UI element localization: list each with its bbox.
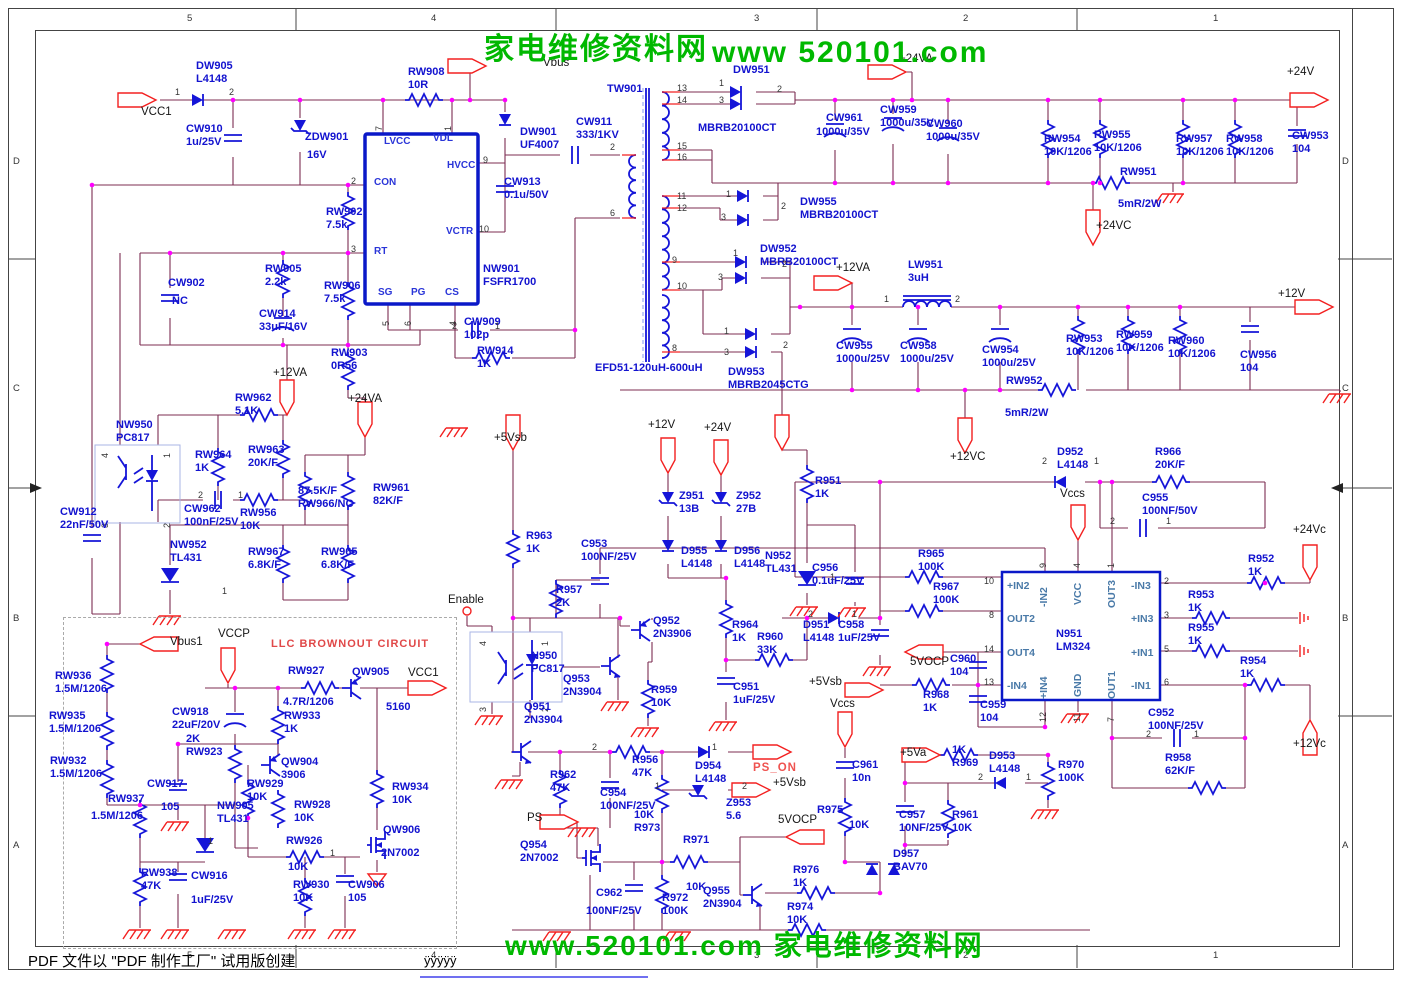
- schematic-label: NC: [172, 295, 188, 308]
- schematic-label: Vbus1: [170, 636, 203, 650]
- schematic-label: 6: [403, 321, 414, 326]
- schematic-label: C960 104: [950, 653, 976, 679]
- footer-text: PDF 文件以 "PDF 制作工厂" 试用版创建: [28, 953, 295, 971]
- schematic-label: 1: [208, 836, 213, 847]
- schematic-label: 2: [1164, 576, 1169, 587]
- schematic-label: RW906 7.5k: [324, 280, 360, 306]
- schematic-label: 1: [238, 490, 243, 501]
- schematic-label: RW964 1K: [195, 449, 231, 475]
- frame-grid-label: A: [1342, 840, 1348, 851]
- frame-grid-label: 3: [754, 13, 759, 24]
- schematic-label: MBRB20100CT: [698, 122, 776, 135]
- schematic-label: 9: [1038, 563, 1049, 568]
- schematic-label: R964 1K: [732, 619, 758, 645]
- schematic-label: RW926: [286, 835, 322, 848]
- schematic-label: R957 2K: [556, 584, 582, 610]
- schematic-label: 14: [677, 95, 687, 106]
- schematic-label: Q954 2N7002: [520, 839, 559, 865]
- schematic-label: PG: [411, 287, 425, 299]
- schematic-label: RW937: [108, 793, 144, 806]
- schematic-label: Z951 13B: [679, 490, 704, 516]
- schematic-label: +12VA: [836, 262, 870, 276]
- schematic-label: 1: [1106, 563, 1117, 568]
- schematic-label: CW961: [826, 112, 863, 125]
- schematic-label: 1: [719, 78, 724, 89]
- schematic-label: RW927: [288, 665, 324, 678]
- schematic-label: RW954 10K/1206: [1044, 133, 1092, 159]
- footer-suffix: ÿÿÿÿÿ: [424, 953, 457, 968]
- schematic-label: Q953 2N3904: [563, 673, 602, 699]
- schematic-label: 16: [677, 152, 687, 163]
- schematic-label: NW952 TL431: [170, 539, 207, 565]
- frame-grid-label: D: [1342, 156, 1349, 167]
- schematic-label: CW917: [147, 778, 184, 791]
- schematic-label: 3: [351, 244, 356, 255]
- schematic-label: 1K R969: [952, 744, 978, 770]
- schematic-label: Q952 2N3906: [653, 615, 692, 641]
- schematic-label: +IN1: [1131, 647, 1153, 659]
- schematic-label: VCC1: [141, 106, 172, 120]
- schematic-label: PS: [527, 812, 542, 826]
- schematic-label: RW938 47K: [141, 867, 177, 893]
- schematic-label: 1: [726, 189, 731, 200]
- schematic-label: R966 20K/F: [1155, 446, 1185, 472]
- schematic-label: 1.5M/1206: [91, 810, 143, 823]
- schematic-label: RW928 10K: [294, 799, 330, 825]
- frame-align-arrow-right: [1331, 483, 1343, 493]
- transformer-tw901: [622, 88, 680, 362]
- schematic-label: RW965 6.8K/F: [321, 546, 357, 572]
- schematic-label: R975: [817, 804, 843, 817]
- schematic-label: 2: [1110, 516, 1115, 527]
- schematic-label: 1uF/25V: [191, 894, 233, 907]
- schematic-label: 1: [733, 248, 738, 259]
- schematic-label: CW954 1000u/25V: [982, 344, 1036, 370]
- schematic-label: 5VOCP: [910, 656, 949, 670]
- schematic-label: VCC: [1072, 583, 1084, 605]
- schematic-label: VCTR: [446, 226, 473, 238]
- schematic-label: 2: [783, 340, 788, 351]
- schematic-label: R972 100K: [662, 892, 688, 918]
- schematic-label: DW955 MBRB20100CT: [800, 196, 878, 222]
- schematic-label: 2: [610, 142, 615, 153]
- watermark-top-site-name: 家电维修资料网: [484, 32, 708, 67]
- schematic-label: RW961 82K/F: [373, 482, 409, 508]
- schematic-label: +24V: [1287, 66, 1314, 80]
- schematic-label: CW912 22nF/50V: [60, 506, 108, 532]
- schematic-label: QW904 3906: [281, 756, 318, 782]
- frame-align-arrow-left: [30, 483, 42, 493]
- schematic-label: D951 L4148: [803, 619, 834, 645]
- schematic-label: +12V: [648, 419, 675, 433]
- schematic-label: R965 100K: [918, 548, 944, 574]
- frame-grid-label: B: [13, 613, 19, 624]
- schematic-label: 2: [742, 781, 747, 792]
- schematic-label: R959 10K: [651, 684, 677, 710]
- schematic-label: 2: [452, 321, 457, 332]
- schematic-label: Q955 2N3904: [703, 885, 742, 911]
- schematic-label: +5Vsb: [494, 432, 527, 446]
- schematic-label: RW960 10K/1206: [1168, 335, 1216, 361]
- schematic-label: CW902: [168, 277, 205, 290]
- schematic-label: RW959 10K/1206: [1116, 329, 1164, 355]
- schematic-label: Q951 2N3904: [524, 701, 563, 727]
- frame-grid-label: C: [13, 383, 20, 394]
- schematic-label: RW936 1.5M/1206: [55, 670, 107, 696]
- schematic-label: OUT1: [1106, 671, 1118, 699]
- schematic-label: D955 L4148: [681, 545, 712, 571]
- schematic-label: C961 10n: [852, 759, 878, 785]
- schematic-label: 2: [351, 176, 356, 187]
- schematic-label: CW953 104: [1292, 130, 1329, 156]
- schematic-label: CW911 333/1KV: [576, 116, 619, 142]
- schematic-label: NW950 PC817: [116, 419, 153, 445]
- watermark-top-url: www 520101.com: [712, 35, 988, 70]
- schematic-label: C951 1uF/25V: [733, 681, 775, 707]
- schematic-label: 5mR/2W: [1118, 198, 1161, 211]
- schematic-label: C953 100NF/25V: [581, 538, 637, 564]
- schematic-label: 9: [483, 155, 488, 166]
- schematic-label: LLC BROWNOUT CIRCUIT: [271, 638, 429, 651]
- schematic-label: RW951: [1120, 166, 1156, 179]
- schematic-label: 2: [781, 201, 786, 212]
- schematic-label: DW953 MBRB2045CTG: [728, 366, 809, 392]
- schematic-label: 4.7R/1206: [283, 696, 334, 709]
- schematic-label: 2: [592, 742, 597, 753]
- schematic-label: 6: [610, 208, 615, 219]
- schematic-label: 7: [1106, 717, 1117, 722]
- schematic-label: R976 1K: [793, 864, 819, 890]
- schematic-label: RW930 10K: [293, 879, 329, 905]
- schematic-label: +5Va: [900, 747, 926, 761]
- schematic-label: 13: [677, 83, 687, 94]
- schematic-label: 2N7002: [381, 847, 420, 860]
- schematic-label: RW935 1.5M/1206: [49, 710, 101, 736]
- schematic-label: 11: [677, 191, 686, 202]
- schematic-label: 10K: [288, 861, 308, 874]
- schematic-label: CW962 100nF/25V: [184, 503, 238, 529]
- schematic-label: R971: [683, 834, 709, 847]
- frame-grid-label: C: [1342, 383, 1349, 394]
- schematic-label: R970 100K: [1058, 759, 1084, 785]
- schematic-label: TW901: [607, 83, 642, 96]
- schematic-label: 6: [1164, 677, 1169, 688]
- schematic-label: RT: [374, 246, 387, 258]
- schematic-label: R961 10K: [952, 809, 978, 835]
- schematic-label: NW905 TL431: [217, 800, 254, 826]
- schematic-label: 2: [978, 772, 983, 783]
- schematic-label: 7: [374, 126, 385, 131]
- schematic-label: N951 LM324: [1056, 628, 1090, 654]
- schematic-label: 1: [884, 294, 889, 305]
- schematic-label: RW902 7.5k: [326, 206, 362, 232]
- schematic-label: 3: [718, 272, 723, 283]
- footer-underline: [420, 976, 648, 978]
- schematic-label: +24VA: [348, 393, 382, 407]
- schematic-label: R974 10K: [787, 901, 813, 927]
- schematic-label: 1: [443, 126, 454, 131]
- schematic-label: DW952 MBRB20100CT: [760, 243, 838, 269]
- schematic-label: CW906 105: [348, 879, 385, 905]
- schematic-label: +IN2: [1007, 580, 1029, 592]
- schematic-label: CW914 33uF/16V: [259, 308, 307, 334]
- schematic-label: RW905 2.2k: [265, 263, 301, 289]
- schematic-label: R951 1K: [815, 475, 841, 501]
- schematic-label: 10K: [849, 819, 869, 832]
- schematic-label: D957 BAV70: [893, 848, 928, 874]
- frame-grid-label: B: [1342, 613, 1348, 624]
- schematic-label: CW955 1000u/25V: [836, 340, 890, 366]
- schematic-label: D956 L4148: [734, 545, 765, 571]
- schematic-label: 1: [162, 453, 173, 458]
- schematic-label: +12V: [1278, 288, 1305, 302]
- schematic-label: RW963 20K/F: [248, 444, 284, 470]
- schematic-label: R953 1K: [1188, 589, 1214, 615]
- schematic-label: 1: [330, 848, 335, 859]
- schematic-label: 100NF/25V: [586, 905, 642, 918]
- schematic-label: RW932 1.5M/1206: [50, 755, 102, 781]
- schematic-label: RW952: [1006, 375, 1042, 388]
- schematic-label: R962 47K: [550, 769, 576, 795]
- schematic-label: 3: [719, 95, 724, 106]
- schematic-label: 2: [777, 84, 782, 95]
- schematic-label: +5Vsb: [773, 777, 806, 791]
- schematic-label: C957 10NF/25V: [899, 809, 949, 835]
- schematic-label: 5mR/2W: [1005, 407, 1048, 420]
- schematic-label: D954 L4148: [695, 760, 726, 786]
- schematic-label: RW953 10K/1206: [1066, 333, 1114, 359]
- schematic-label: 105: [161, 801, 179, 814]
- schematic-label: C959 104: [980, 699, 1006, 725]
- schematic-label: 14: [984, 644, 994, 655]
- schematic-label: LVCC: [384, 136, 410, 148]
- frame-grid-label: 1: [1213, 13, 1218, 24]
- schematic-label: RW908 10R: [408, 66, 444, 92]
- schematic-label: C962: [596, 887, 622, 900]
- schematic-label: 1: [712, 742, 717, 753]
- schematic-label: 3: [721, 212, 726, 223]
- frame-grid-label: 1: [1213, 950, 1218, 961]
- schematic-label: 2: [955, 294, 960, 305]
- schematic-label: 4: [1072, 563, 1083, 568]
- schematic-label: 3: [724, 347, 729, 358]
- schematic-label: CW956 104: [1240, 349, 1277, 375]
- schematic-label: 1000u/35V: [816, 126, 870, 139]
- schematic-label: -IN1: [1131, 680, 1151, 692]
- schematic-label: 2: [1042, 456, 1047, 467]
- schematic-label: NW901 FSFR1700: [483, 263, 536, 289]
- schematic-label: RW933 1K: [284, 710, 320, 736]
- schematic-label: 2: [782, 259, 787, 270]
- schematic-label: 4: [478, 641, 489, 646]
- schematic-label: SG: [378, 287, 392, 299]
- schematic-label: 1: [495, 321, 500, 332]
- schematic-label: GND: [1072, 674, 1084, 697]
- schematic-label: 1: [540, 641, 551, 646]
- schematic-label: CW913 0.1u/50V: [504, 176, 549, 202]
- schematic-label: RW962 5.1K: [235, 392, 271, 418]
- schematic-label: ZDW901: [305, 131, 348, 144]
- schematic-label: VCC1: [408, 667, 439, 681]
- frame-grid-label: 2: [963, 13, 968, 24]
- schematic-label: R956 47K: [632, 754, 658, 780]
- schematic-label: HVCC: [447, 160, 475, 172]
- schematic-label: 1: [222, 586, 227, 597]
- schematic-label: -IN2: [1038, 587, 1050, 607]
- schematic-label: Z952 27B: [736, 490, 761, 516]
- schematic-label: R960 33K: [757, 631, 783, 657]
- schematic-label: RW934 10K: [392, 781, 428, 807]
- schematic-label: 12: [677, 203, 687, 214]
- schematic-label: 10: [677, 281, 687, 292]
- schematic-label: 1: [655, 781, 660, 792]
- schematic-label: R963 1K: [526, 530, 552, 556]
- schematic-label: C955 100NF/50V: [1142, 492, 1198, 518]
- schematic-label: EFD51-120uH-600uH: [595, 362, 703, 375]
- schematic-label: CON: [374, 177, 396, 189]
- schematic-page: DW905 L4148VCC1CW910 1u/25VZDW90116VRW90…: [0, 0, 1402, 992]
- schematic-label: +12VC: [950, 451, 985, 465]
- schematic-label: RW967 6.8K/F: [248, 546, 284, 572]
- schematic-label: 1: [1194, 729, 1199, 740]
- schematic-label: +12Vc: [1293, 738, 1326, 752]
- schematic-label: 2: [808, 609, 813, 620]
- schematic-label: 1: [1166, 516, 1171, 527]
- schematic-label: C956 0.1uF/25V: [812, 562, 863, 588]
- schematic-label: CW958 1000u/25V: [900, 340, 954, 366]
- schematic-label: Vccs: [1060, 488, 1085, 502]
- schematic-label: 87.5K/F RW966/NC: [298, 485, 353, 511]
- schematic-label: 3: [1164, 610, 1169, 621]
- schematic-label: R954 1K: [1240, 655, 1266, 681]
- schematic-label: OUT3: [1106, 580, 1118, 608]
- schematic-label: 1: [175, 87, 180, 98]
- schematic-label: 16V: [307, 149, 327, 162]
- schematic-label: RW958 10K/1206: [1226, 133, 1274, 159]
- schematic-label: Vccs: [830, 698, 855, 712]
- schematic-label: 2: [162, 523, 173, 528]
- schematic-label: DW901 UF4007: [520, 126, 559, 152]
- schematic-label: Enable: [448, 594, 484, 608]
- schematic-label: OUT4: [1007, 647, 1035, 659]
- schematic-label: RW957 10K/1206: [1176, 133, 1224, 159]
- frame-grid-label: 5: [187, 13, 192, 24]
- schematic-label: 4: [100, 453, 111, 458]
- schematic-label: PS_ON: [753, 762, 797, 776]
- schematic-label: 13: [984, 677, 994, 688]
- schematic-label: VCCP: [218, 628, 250, 642]
- schematic-label: +5Vsb: [809, 676, 842, 690]
- schematic-label: CW916: [191, 870, 228, 883]
- schematic-label: CW918 22uF/20V: [172, 706, 220, 732]
- schematic-label: R952 1K: [1248, 553, 1274, 579]
- schematic-label: CS: [445, 287, 459, 299]
- schematic-label: N952 TL431: [765, 550, 797, 576]
- schematic-label: 5160: [386, 701, 410, 714]
- schematic-label: QW905: [352, 666, 389, 679]
- schematic-label: 5: [1164, 644, 1169, 655]
- schematic-label: 10K R973: [634, 809, 660, 835]
- schematic-label: -IN4: [1007, 680, 1027, 692]
- schematic-label: 8: [989, 610, 994, 621]
- schematic-label: 10: [984, 576, 994, 587]
- schematic-label: QW906: [383, 824, 420, 837]
- schematic-label: 9: [672, 255, 677, 266]
- schematic-label: +24V: [704, 422, 731, 436]
- frame-grid-label: 4: [431, 13, 436, 24]
- schematic-label: 10: [479, 224, 489, 235]
- schematic-label: -IN3: [1131, 580, 1151, 592]
- schematic-label: 15: [677, 141, 687, 152]
- frame-grid-label: D: [13, 156, 20, 167]
- schematic-label: 2: [229, 87, 234, 98]
- schematic-label: R967 100K: [933, 581, 959, 607]
- schematic-label: CW960 1000u/35V: [926, 118, 980, 144]
- schematic-label: RW903 0R56: [331, 347, 367, 373]
- schematic-label: 2: [198, 490, 203, 501]
- schematic-label: 1: [1094, 456, 1099, 467]
- watermark-bottom: www.520101.com 家电维修资料网: [505, 929, 984, 962]
- schematic-label: R958 62K/F: [1165, 752, 1195, 778]
- schematic-label: +IN3: [1131, 613, 1153, 625]
- schematic-label: 8: [672, 343, 677, 354]
- frame-grid-label: A: [13, 840, 19, 851]
- schematic-label: 12: [1038, 712, 1049, 722]
- schematic-label: R968 1K: [923, 689, 949, 715]
- schematic-label: +24Vc: [1293, 524, 1326, 538]
- schematic-label: RW956 10K: [240, 507, 276, 533]
- schematic-label: OUT2: [1007, 613, 1035, 625]
- schematic-label: C958 1uF/25V: [838, 619, 880, 645]
- schematic-label: 5VOCP: [778, 814, 817, 828]
- schematic-label: D952 L4148: [1057, 446, 1088, 472]
- schematic-label: 11: [1072, 713, 1083, 722]
- schematic-label: D953 L4148: [989, 750, 1020, 776]
- schematic-label: +IN4: [1038, 677, 1050, 699]
- schematic-label: 2: [1146, 729, 1151, 740]
- schematic-label: CW910 1u/25V: [186, 123, 223, 149]
- schematic-label: 2K RW923: [186, 733, 222, 759]
- schematic-label: 3: [478, 707, 489, 712]
- schematic-label: 1: [724, 326, 729, 337]
- schematic-label: Z953 5.6: [726, 797, 751, 823]
- schematic-label: +12VA: [273, 367, 307, 381]
- schematic-label: RW955 10K/1206: [1094, 129, 1142, 155]
- schematic-label: LW951 3uH: [908, 259, 943, 285]
- schematic-label: DW905 L4148: [196, 60, 233, 86]
- schematic-label: R955 1K: [1188, 622, 1214, 648]
- schematic-label: N950 PC817: [531, 650, 565, 676]
- schematic-label: RW914 1K: [477, 345, 513, 371]
- schematic-label: 1: [1026, 772, 1031, 783]
- schematic-label: 5: [381, 321, 392, 326]
- schematic-label: +24VC: [1096, 220, 1131, 234]
- inductor-lw951: [903, 296, 951, 307]
- schematic-label: VDL: [433, 133, 453, 145]
